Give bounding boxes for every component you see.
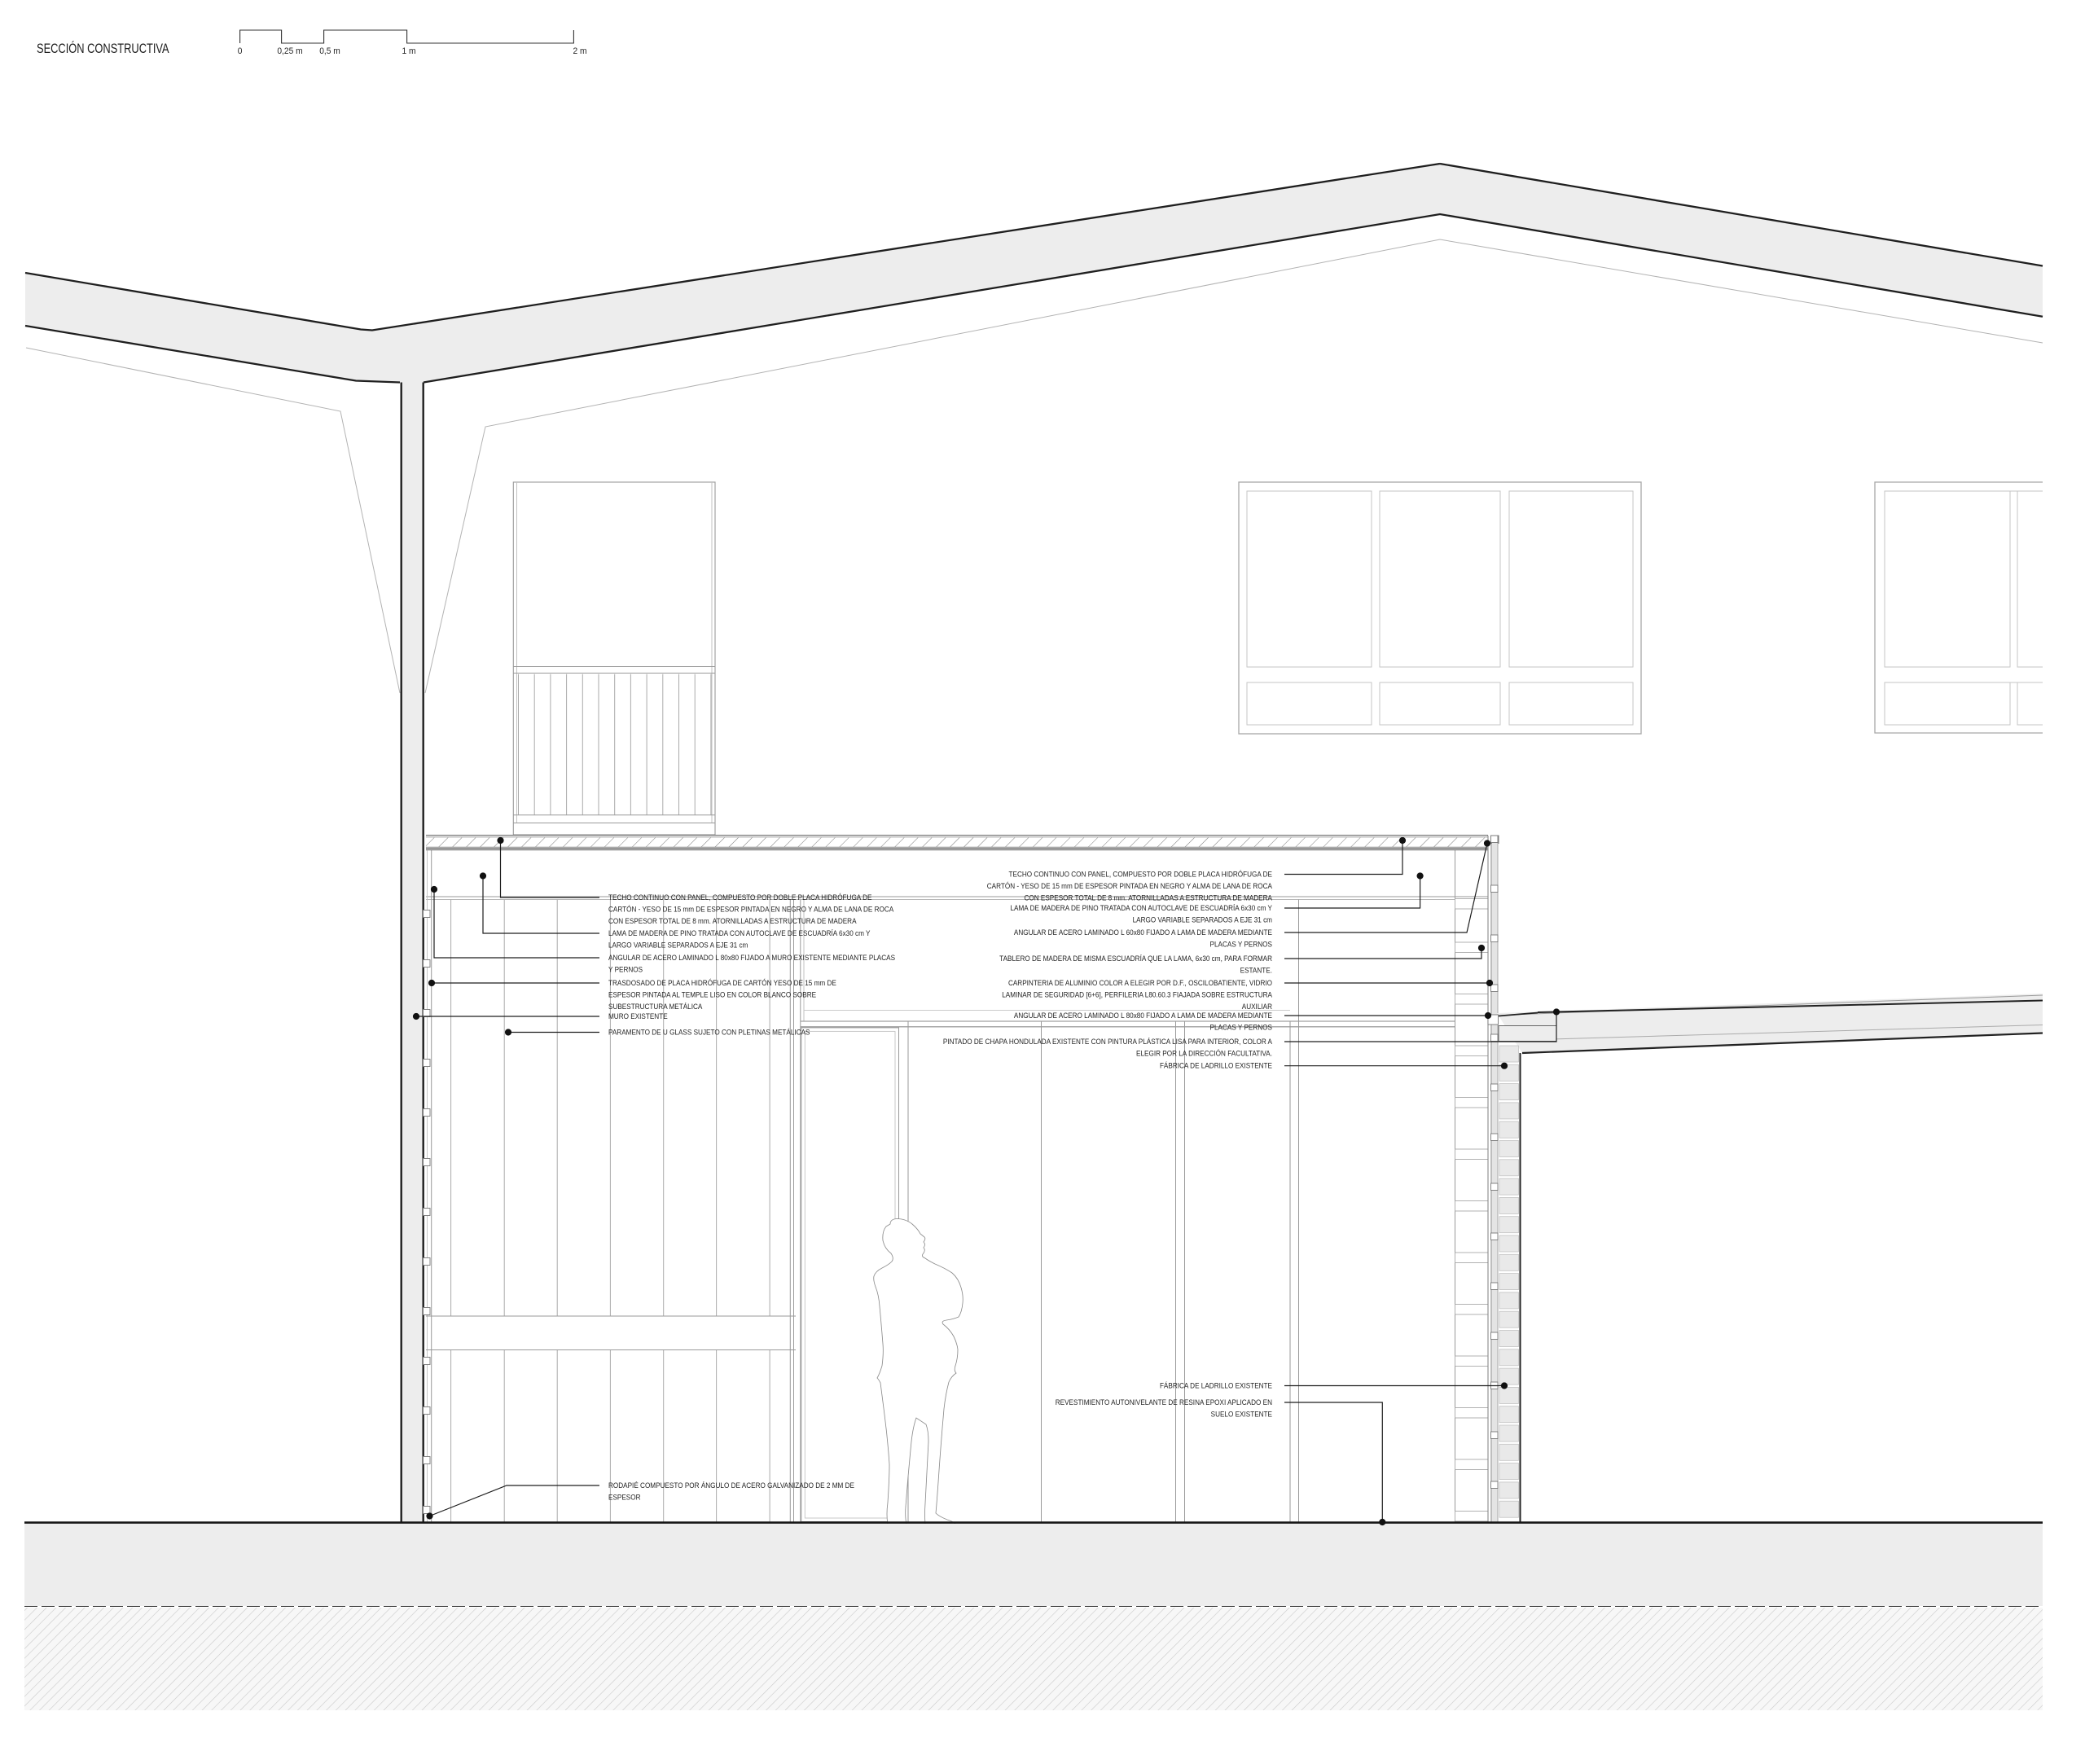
svg-text:0,5 m: 0,5 m (319, 46, 340, 56)
svg-text:REVESTIMIENTO AUTONIVELANTE DE: REVESTIMIENTO AUTONIVELANTE DE RESINA EP… (1056, 1398, 1272, 1406)
svg-text:0,25 m: 0,25 m (277, 46, 302, 56)
svg-text:TRASDOSADO DE PLACA HIDRÓFUGA: TRASDOSADO DE PLACA HIDRÓFUGA DE CARTÓN … (608, 979, 836, 987)
svg-text:LAMA DE MADERA DE PINO TRATADA: LAMA DE MADERA DE PINO TRATADA CON AUTOC… (608, 929, 871, 937)
svg-text:FÁBRICA DE LADRILLO EXISTENTE: FÁBRICA DE LADRILLO EXISTENTE (1160, 1061, 1272, 1069)
svg-text:CARTÓN - YESO DE 15 mm DE ESPE: CARTÓN - YESO DE 15 mm DE ESPESOR PINTAD… (608, 905, 894, 913)
svg-text:ELEGIR POR LA DIRECCIÓN FACULT: ELEGIR POR LA DIRECCIÓN FACULTATIVA. (1136, 1049, 1272, 1057)
svg-text:SUELO EXISTENTE: SUELO EXISTENTE (1211, 1410, 1273, 1418)
svg-text:TECHO CONTINUO CON PANEL, COMP: TECHO CONTINUO CON PANEL, COMPUESTO POR … (1009, 870, 1273, 878)
svg-text:RODAPIÉ COMPUESTO POR ÁNGULO D: RODAPIÉ COMPUESTO POR ÁNGULO DE ACERO GA… (608, 1481, 854, 1490)
svg-text:CON ESPESOR TOTAL DE 8 mm. ATO: CON ESPESOR TOTAL DE 8 mm. ATORNILLADAS … (608, 917, 857, 925)
svg-text:0: 0 (238, 46, 243, 56)
svg-text:CON ESPESOR TOTAL DE 8 mm. ATO: CON ESPESOR TOTAL DE 8 mm. ATORNILLADAS … (1024, 893, 1272, 902)
svg-text:ANGULAR DE ACERO LAMINADO L 80: ANGULAR DE ACERO LAMINADO L 80x80 FIJADO… (1014, 1011, 1272, 1020)
svg-text:MURO EXISTENTE: MURO EXISTENTE (608, 1012, 668, 1020)
svg-text:ESPESOR PINTADA AL TEMPLE LISO: ESPESOR PINTADA AL TEMPLE LISO EN COLOR … (608, 990, 816, 998)
svg-text:FÁBRICA DE LADRILLO EXISTENTE: FÁBRICA DE LADRILLO EXISTENTE (1160, 1381, 1272, 1389)
svg-text:TECHO CONTINUO CON PANEL, COMP: TECHO CONTINUO CON PANEL, COMPUESTO POR … (608, 893, 872, 902)
svg-text:SUBESTRUCTURA METÁLICA: SUBESTRUCTURA METÁLICA (608, 1003, 703, 1011)
svg-text:CARTÓN - YESO DE 15 mm DE ESPE: CARTÓN - YESO DE 15 mm DE ESPESOR PINTAD… (987, 882, 1273, 890)
svg-text:PARAMENTO DE U GLASS SUJETO CO: PARAMENTO DE U GLASS SUJETO CON PLETINAS… (608, 1028, 810, 1036)
svg-text:TABLERO DE MADERA DE MISMA ESC: TABLERO DE MADERA DE MISMA ESCUADRÍA QUE… (999, 954, 1272, 963)
svg-text:LAMINAR DE SEGURIDAD [6+6], PE: LAMINAR DE SEGURIDAD [6+6], PERFILERIA L… (1002, 990, 1272, 998)
svg-text:CARPINTERIA DE ALUMINIO COLOR: CARPINTERIA DE ALUMINIO COLOR A ELEGIR P… (1008, 979, 1272, 987)
svg-text:LARGO VARIABLE SEPARADOS A EJE: LARGO VARIABLE SEPARADOS A EJE 31 cm (608, 941, 748, 949)
svg-text:Y PERNOS: Y PERNOS (608, 965, 643, 973)
svg-text:PINTADO DE CHAPA HONDULADA EXI: PINTADO DE CHAPA HONDULADA EXISTENTE CON… (943, 1038, 1272, 1046)
svg-text:LAMA DE MADERA DE PINO TRATADA: LAMA DE MADERA DE PINO TRATADA CON AUTOC… (1011, 904, 1273, 912)
svg-text:2 m: 2 m (573, 46, 586, 56)
svg-text:ESTANTE.: ESTANTE. (1240, 966, 1272, 974)
svg-text:AUXILIAR: AUXILIAR (1242, 1003, 1272, 1011)
svg-text:PLACAS Y PERNOS: PLACAS Y PERNOS (1210, 940, 1273, 948)
svg-text:ANGULAR DE ACERO LAMINADO L 60: ANGULAR DE ACERO LAMINADO L 60x80 FIJADO… (1014, 928, 1272, 937)
svg-text:PLACAS Y PERNOS: PLACAS Y PERNOS (1210, 1023, 1273, 1031)
svg-text:ESPESOR: ESPESOR (608, 1493, 641, 1501)
svg-text:ANGULAR DE ACERO LAMINADO L 80: ANGULAR DE ACERO LAMINADO L 80x80 FIJADO… (608, 954, 895, 962)
svg-text:LARGO VARIABLE SEPARADOS A EJE: LARGO VARIABLE SEPARADOS A EJE 31 cm (1133, 915, 1272, 924)
svg-text:1 m: 1 m (402, 46, 415, 56)
svg-text:SECCIÓN CONSTRUCTIVA: SECCIÓN CONSTRUCTIVA (37, 42, 169, 57)
